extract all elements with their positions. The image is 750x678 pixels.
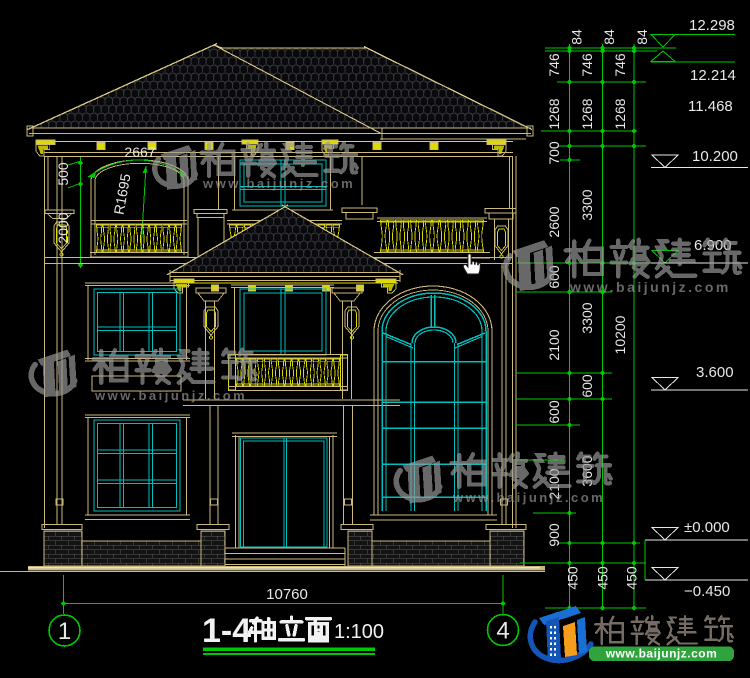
svg-text:700: 700	[546, 141, 562, 165]
svg-text:www.baijunjz.com: www.baijunjz.com	[605, 647, 718, 661]
svg-text:12.298: 12.298	[689, 17, 735, 34]
svg-text:2667: 2667	[124, 144, 155, 160]
svg-text:1-4: 1-4	[202, 612, 251, 650]
svg-text:2600: 2600	[546, 206, 562, 237]
svg-text:2000: 2000	[55, 212, 71, 243]
svg-text:450: 450	[595, 566, 611, 590]
svg-text:www.baijunjz.com: www.baijunjz.com	[569, 279, 731, 295]
svg-text:2100: 2100	[546, 329, 562, 360]
svg-text:10200: 10200	[612, 315, 628, 354]
svg-text:3300: 3300	[579, 189, 595, 220]
svg-text:500: 500	[55, 162, 71, 186]
svg-text:600: 600	[579, 374, 595, 398]
svg-text:1268: 1268	[612, 98, 628, 129]
svg-text:84: 84	[634, 29, 650, 45]
svg-text:10760: 10760	[266, 586, 308, 603]
svg-text:3.600: 3.600	[696, 364, 734, 381]
svg-text:746: 746	[546, 53, 562, 77]
svg-text:600: 600	[546, 400, 562, 424]
svg-text:900: 900	[546, 523, 562, 547]
svg-text:450: 450	[565, 566, 581, 590]
svg-text:3300: 3300	[579, 302, 595, 333]
svg-text:1268: 1268	[546, 98, 562, 129]
svg-text:84: 84	[569, 29, 585, 45]
svg-text:450: 450	[624, 566, 640, 590]
svg-text:12.214: 12.214	[690, 67, 736, 84]
svg-text:1:100: 1:100	[334, 621, 384, 643]
svg-text:746: 746	[579, 53, 595, 77]
svg-text:1268: 1268	[579, 98, 595, 129]
svg-text:www.baijunjz.com: www.baijunjz.com	[452, 490, 605, 505]
svg-text:−0.450: −0.450	[684, 583, 730, 600]
svg-text:±0.000: ±0.000	[684, 519, 730, 536]
svg-text:www.baijunjz.com: www.baijunjz.com	[202, 176, 355, 191]
svg-text:11.468: 11.468	[688, 98, 733, 115]
svg-text:10.200: 10.200	[692, 148, 738, 165]
svg-text:746: 746	[612, 53, 628, 77]
svg-text:84: 84	[601, 29, 617, 45]
svg-text:www.baijunjz.com: www.baijunjz.com	[94, 388, 247, 403]
svg-text:1: 1	[58, 618, 71, 645]
svg-text:4: 4	[496, 618, 509, 645]
